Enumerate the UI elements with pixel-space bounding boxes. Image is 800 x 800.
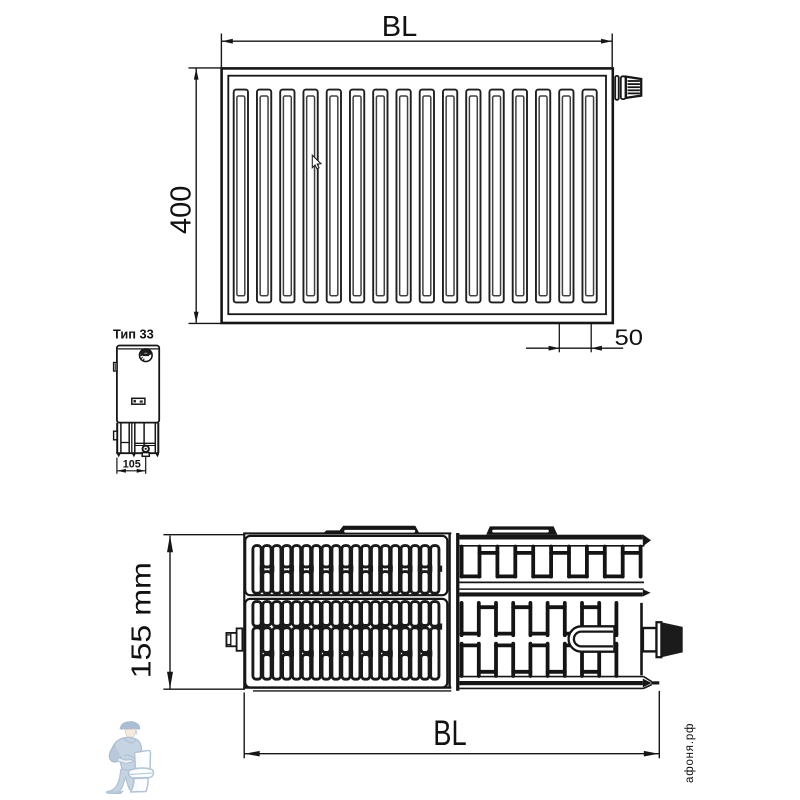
svg-text:BL: BL <box>433 714 466 753</box>
svg-text:BL: BL <box>382 11 417 43</box>
svg-text:155 mm: 155 mm <box>126 562 157 678</box>
svg-text:Тип 33: Тип 33 <box>113 327 154 342</box>
svg-text:400: 400 <box>165 186 197 234</box>
svg-text:афоня.рф: афоня.рф <box>684 723 696 783</box>
svg-text:105: 105 <box>123 459 141 471</box>
svg-text:50: 50 <box>614 326 643 351</box>
